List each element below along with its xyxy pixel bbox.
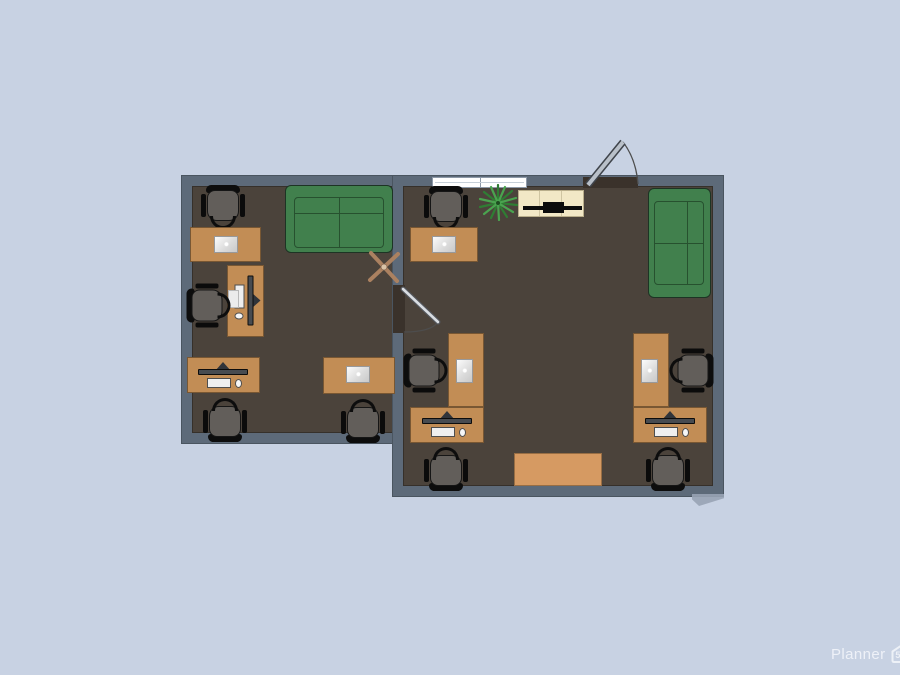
monitor-screen	[248, 276, 254, 326]
potted-plant-icon[interactable]	[477, 183, 519, 221]
chair-armrest-left	[463, 459, 468, 482]
coffee-table[interactable]	[514, 453, 602, 486]
chair-armrest-left	[242, 410, 247, 433]
office-chair[interactable]	[187, 284, 232, 328]
chair-armrest-right	[413, 349, 436, 354]
laptop[interactable]	[432, 236, 456, 253]
chair-base	[212, 398, 238, 411]
entry-door[interactable]	[578, 133, 642, 191]
desktop-computer[interactable]	[645, 411, 695, 438]
mouse	[235, 379, 242, 388]
floorplan-canvas: Planner 5d	[0, 0, 900, 675]
fan-hub	[381, 264, 387, 270]
ceiling-fan-icon[interactable]	[364, 247, 404, 287]
office-chair[interactable]	[424, 446, 468, 491]
office-chair[interactable]	[424, 186, 468, 231]
chair-armrest-left	[413, 388, 436, 393]
chair-base	[350, 399, 376, 412]
watermark: Planner 5d	[831, 644, 900, 664]
sofa[interactable]	[648, 188, 711, 298]
mouse	[459, 428, 466, 437]
chair-armrest-right	[341, 411, 346, 434]
chair-base	[655, 447, 681, 460]
door-swing-arc	[404, 322, 438, 332]
chair-base	[218, 293, 231, 319]
sofa-cushion-line	[687, 201, 688, 285]
laptop[interactable]	[456, 359, 473, 383]
plant-center	[496, 201, 500, 205]
monitor-screen	[198, 369, 248, 375]
keyboard	[654, 427, 678, 437]
watermark-badge-text: 5d	[895, 650, 900, 660]
chair-armrest-right	[463, 195, 468, 218]
chair-base	[433, 447, 459, 460]
office-chair[interactable]	[341, 398, 385, 443]
tv-stand[interactable]	[518, 190, 584, 217]
keyboard	[431, 427, 455, 437]
chair-armrest-right	[424, 459, 429, 482]
door-leaf	[403, 289, 438, 322]
wall-corner-shadow	[692, 494, 724, 506]
chair-armrest-right	[203, 410, 208, 433]
chair-armrest-right	[196, 284, 219, 289]
chair-armrest-left	[201, 194, 206, 217]
desktop-computer[interactable]	[198, 362, 248, 389]
chair-armrest-left	[380, 411, 385, 434]
sofa[interactable]	[285, 185, 393, 253]
office-chair[interactable]	[201, 185, 245, 230]
laptop[interactable]	[214, 236, 238, 253]
mouse	[682, 428, 689, 437]
chair-armrest-right	[682, 388, 705, 393]
office-chair[interactable]	[203, 397, 247, 442]
laptop[interactable]	[641, 359, 658, 383]
chair-base	[435, 358, 448, 384]
office-chair[interactable]	[404, 349, 449, 393]
laptop[interactable]	[346, 366, 370, 383]
monitor-screen	[645, 418, 695, 424]
chair-base	[670, 358, 683, 384]
sofa-cushion-line	[294, 213, 384, 214]
chair-armrest-left	[685, 459, 690, 482]
mouse	[235, 313, 244, 320]
office-chair[interactable]	[646, 446, 690, 491]
interior-door[interactable]	[392, 283, 444, 335]
chair-armrest-right	[646, 459, 651, 482]
tv-base	[543, 202, 564, 213]
desktop-computer[interactable]	[422, 411, 472, 438]
chair-armrest-left	[196, 323, 219, 328]
office-chair[interactable]	[669, 349, 714, 393]
planner5d-logo-icon: 5d	[890, 644, 900, 664]
keyboard	[207, 378, 231, 388]
watermark-brand: Planner	[831, 646, 886, 663]
monitor-screen	[422, 418, 472, 424]
chair-armrest-left	[682, 349, 705, 354]
chair-armrest-right	[240, 194, 245, 217]
chair-armrest-left	[424, 195, 429, 218]
